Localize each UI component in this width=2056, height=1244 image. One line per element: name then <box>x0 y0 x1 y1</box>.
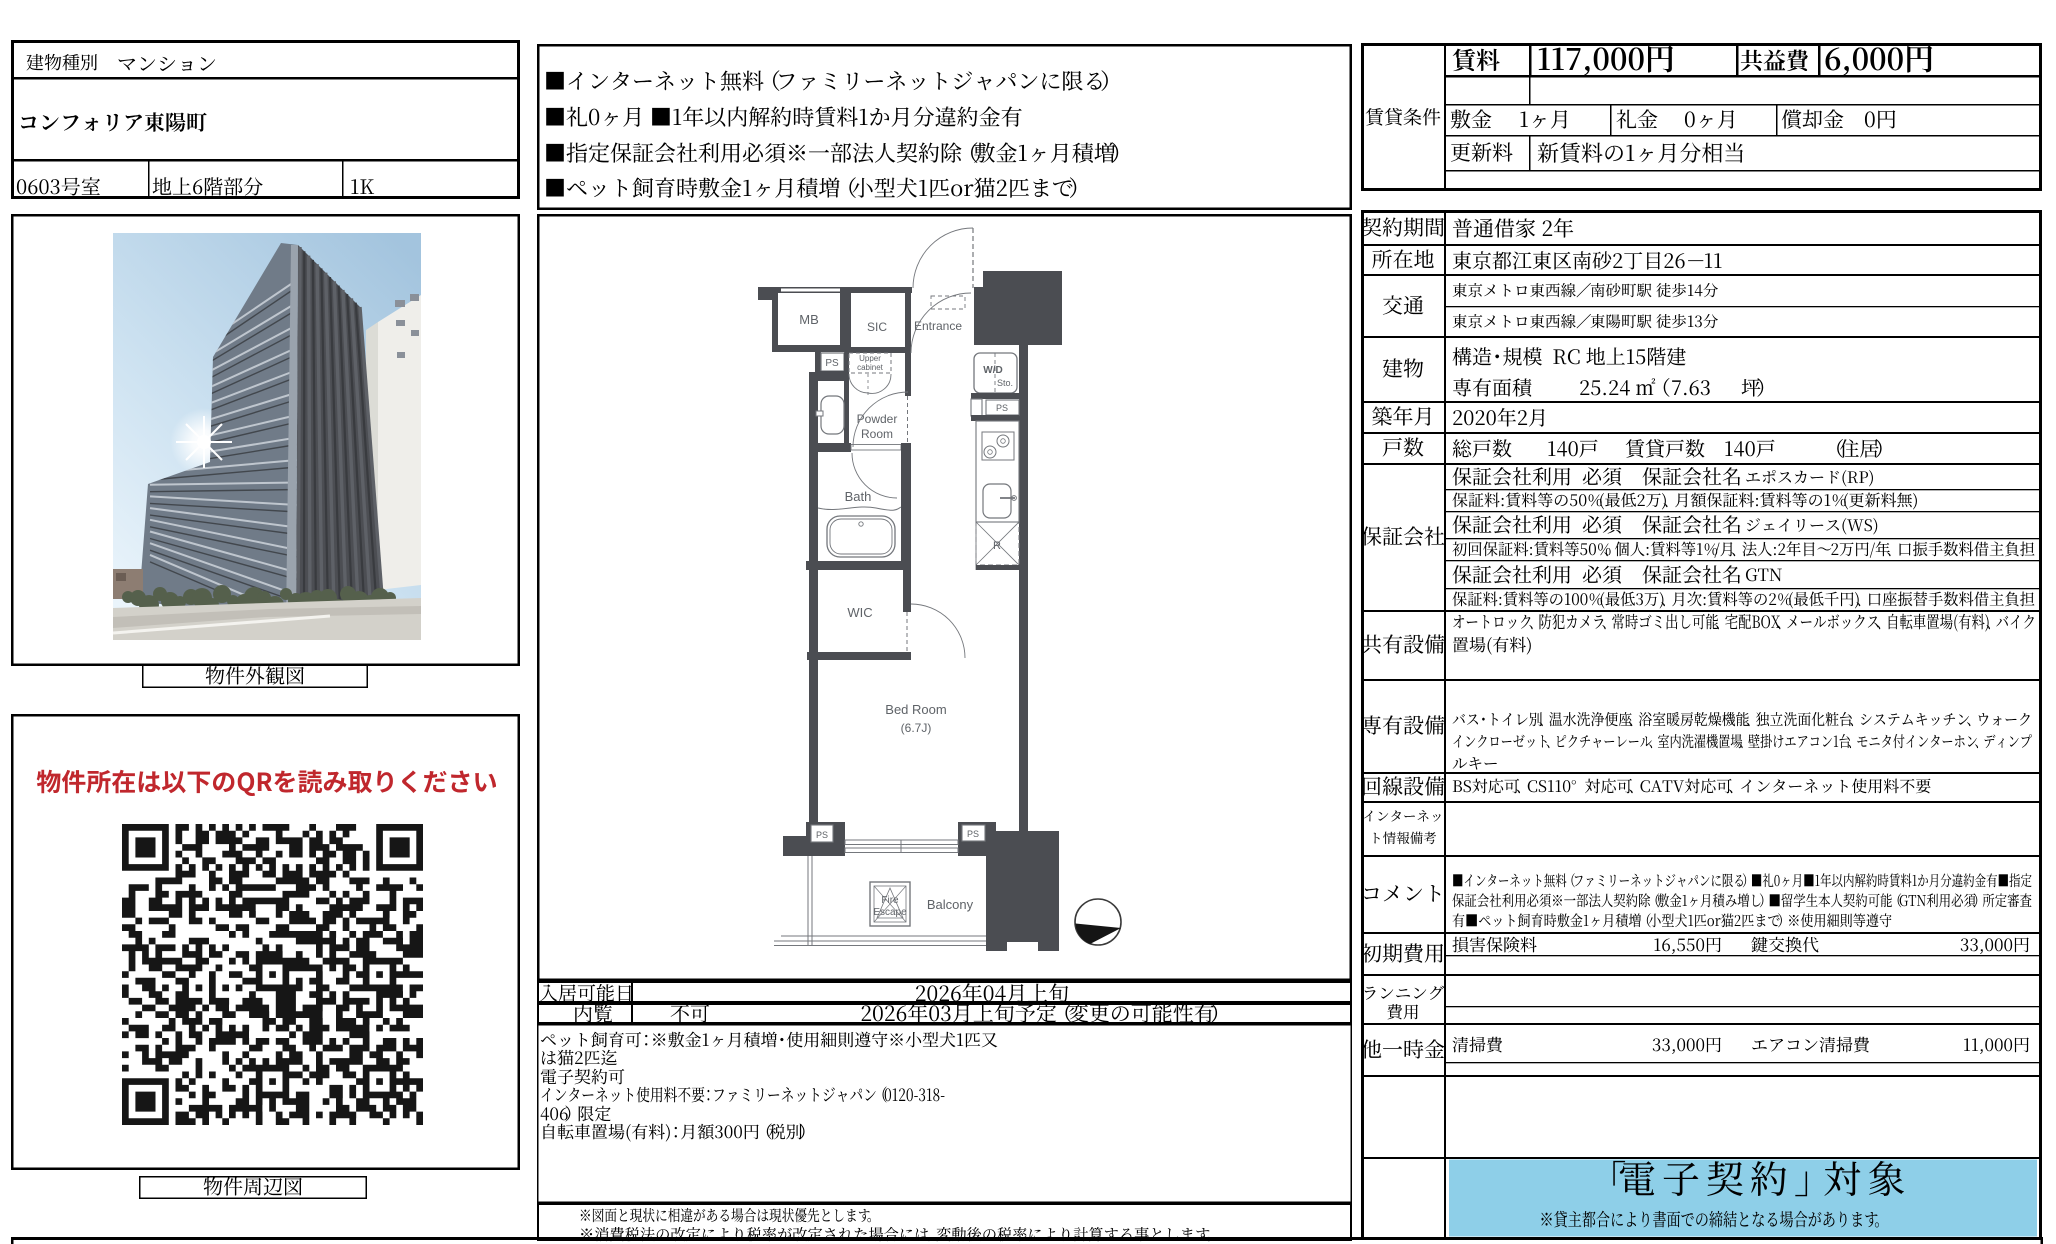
svg-text:(6.7J): (6.7J) <box>901 721 932 735</box>
svg-text:WIC: WIC <box>847 605 872 620</box>
svg-text:Sto.: Sto. <box>997 378 1013 388</box>
svg-text:Balcony: Balcony <box>927 897 974 912</box>
svg-text:cabinet: cabinet <box>857 363 884 372</box>
svg-text:PS: PS <box>825 358 839 369</box>
svg-text:Upper: Upper <box>859 354 881 363</box>
svg-text:Powder: Powder <box>857 412 898 426</box>
svg-text:R: R <box>993 540 1001 552</box>
svg-text:MB: MB <box>799 312 819 327</box>
svg-text:SIC: SIC <box>867 320 887 334</box>
svg-text:PS: PS <box>967 829 979 839</box>
svg-text:W/D: W/D <box>983 365 1002 376</box>
svg-text:PS: PS <box>996 403 1008 413</box>
svg-text:Room: Room <box>861 427 893 441</box>
svg-text:Entrance: Entrance <box>914 319 962 333</box>
svg-text:Bath: Bath <box>845 489 872 504</box>
svg-text:PS: PS <box>816 830 828 840</box>
svg-text:Fire: Fire <box>881 895 899 906</box>
svg-text:Escape: Escape <box>873 907 907 918</box>
svg-text:Bed Room: Bed Room <box>885 702 946 717</box>
